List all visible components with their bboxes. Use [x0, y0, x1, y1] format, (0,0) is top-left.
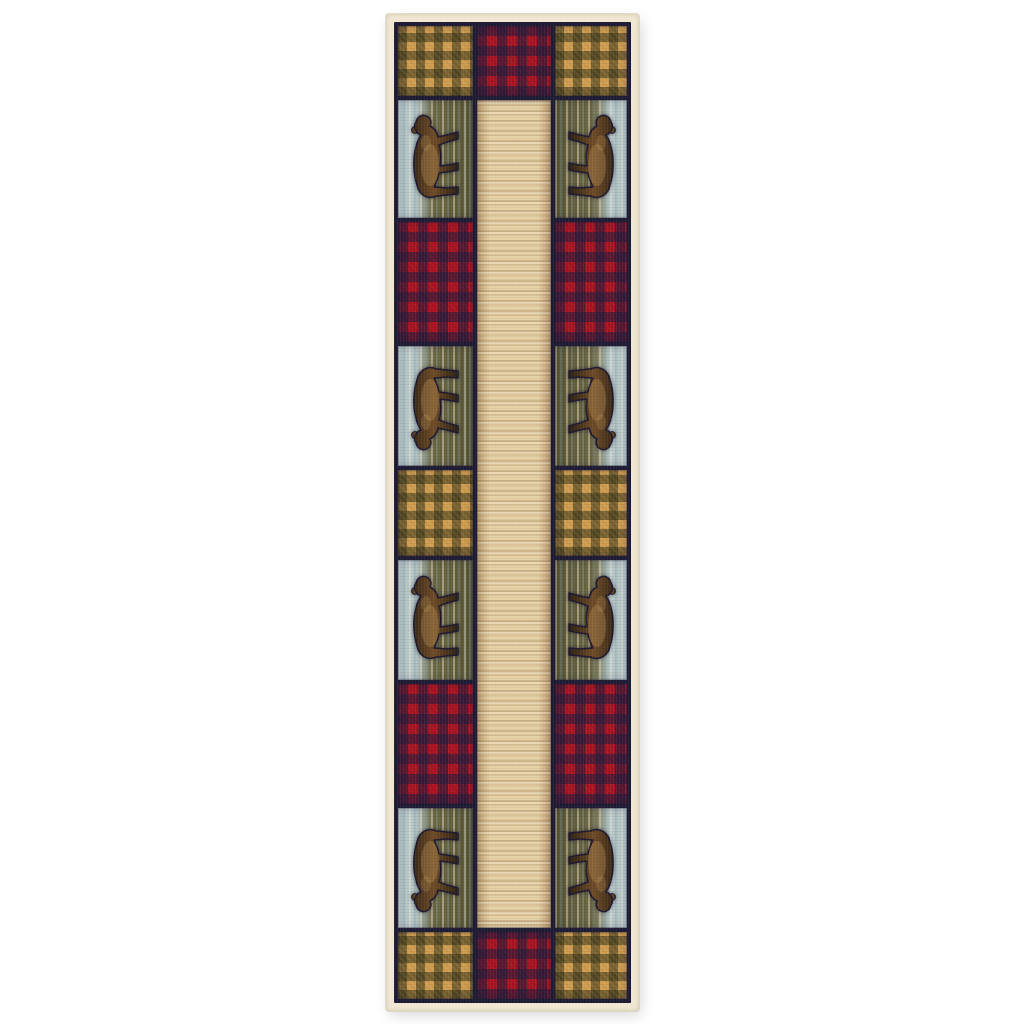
- gingham-check-patch: [398, 932, 473, 999]
- white-backdrop: [0, 0, 1024, 1024]
- buffalo-plaid-patch: [398, 684, 473, 804]
- buffalo-plaid-patch: [477, 26, 551, 96]
- gingham-check-patch: [555, 26, 627, 96]
- gingham-check-patch: [555, 932, 627, 999]
- gingham-check-patch: [398, 26, 473, 96]
- bear-motif: [562, 109, 620, 209]
- bear-motif: [407, 818, 465, 918]
- bear-panel: [398, 808, 473, 928]
- bear-panel: [555, 808, 627, 928]
- bear-panel: [555, 346, 627, 466]
- bear-motif: [407, 570, 465, 670]
- bear-motif: [562, 818, 620, 918]
- bear-panel: [398, 100, 473, 218]
- bear-panel: [555, 560, 627, 680]
- bear-motif: [562, 570, 620, 670]
- buffalo-plaid-patch: [398, 222, 473, 342]
- buffalo-plaid-patch: [477, 932, 551, 999]
- buffalo-plaid-patch: [555, 222, 627, 342]
- runner-rug: [386, 14, 639, 1011]
- gingham-check-patch: [398, 470, 473, 556]
- bear-motif: [562, 356, 620, 456]
- bear-panel: [398, 560, 473, 680]
- rug-patchwork-grid: [394, 22, 631, 1003]
- bear-panel: [555, 100, 627, 218]
- center-field-strip: [477, 100, 551, 928]
- gingham-check-patch: [555, 470, 627, 556]
- bear-motif: [407, 356, 465, 456]
- bear-motif: [407, 109, 465, 209]
- bear-panel: [398, 346, 473, 466]
- buffalo-plaid-patch: [555, 684, 627, 804]
